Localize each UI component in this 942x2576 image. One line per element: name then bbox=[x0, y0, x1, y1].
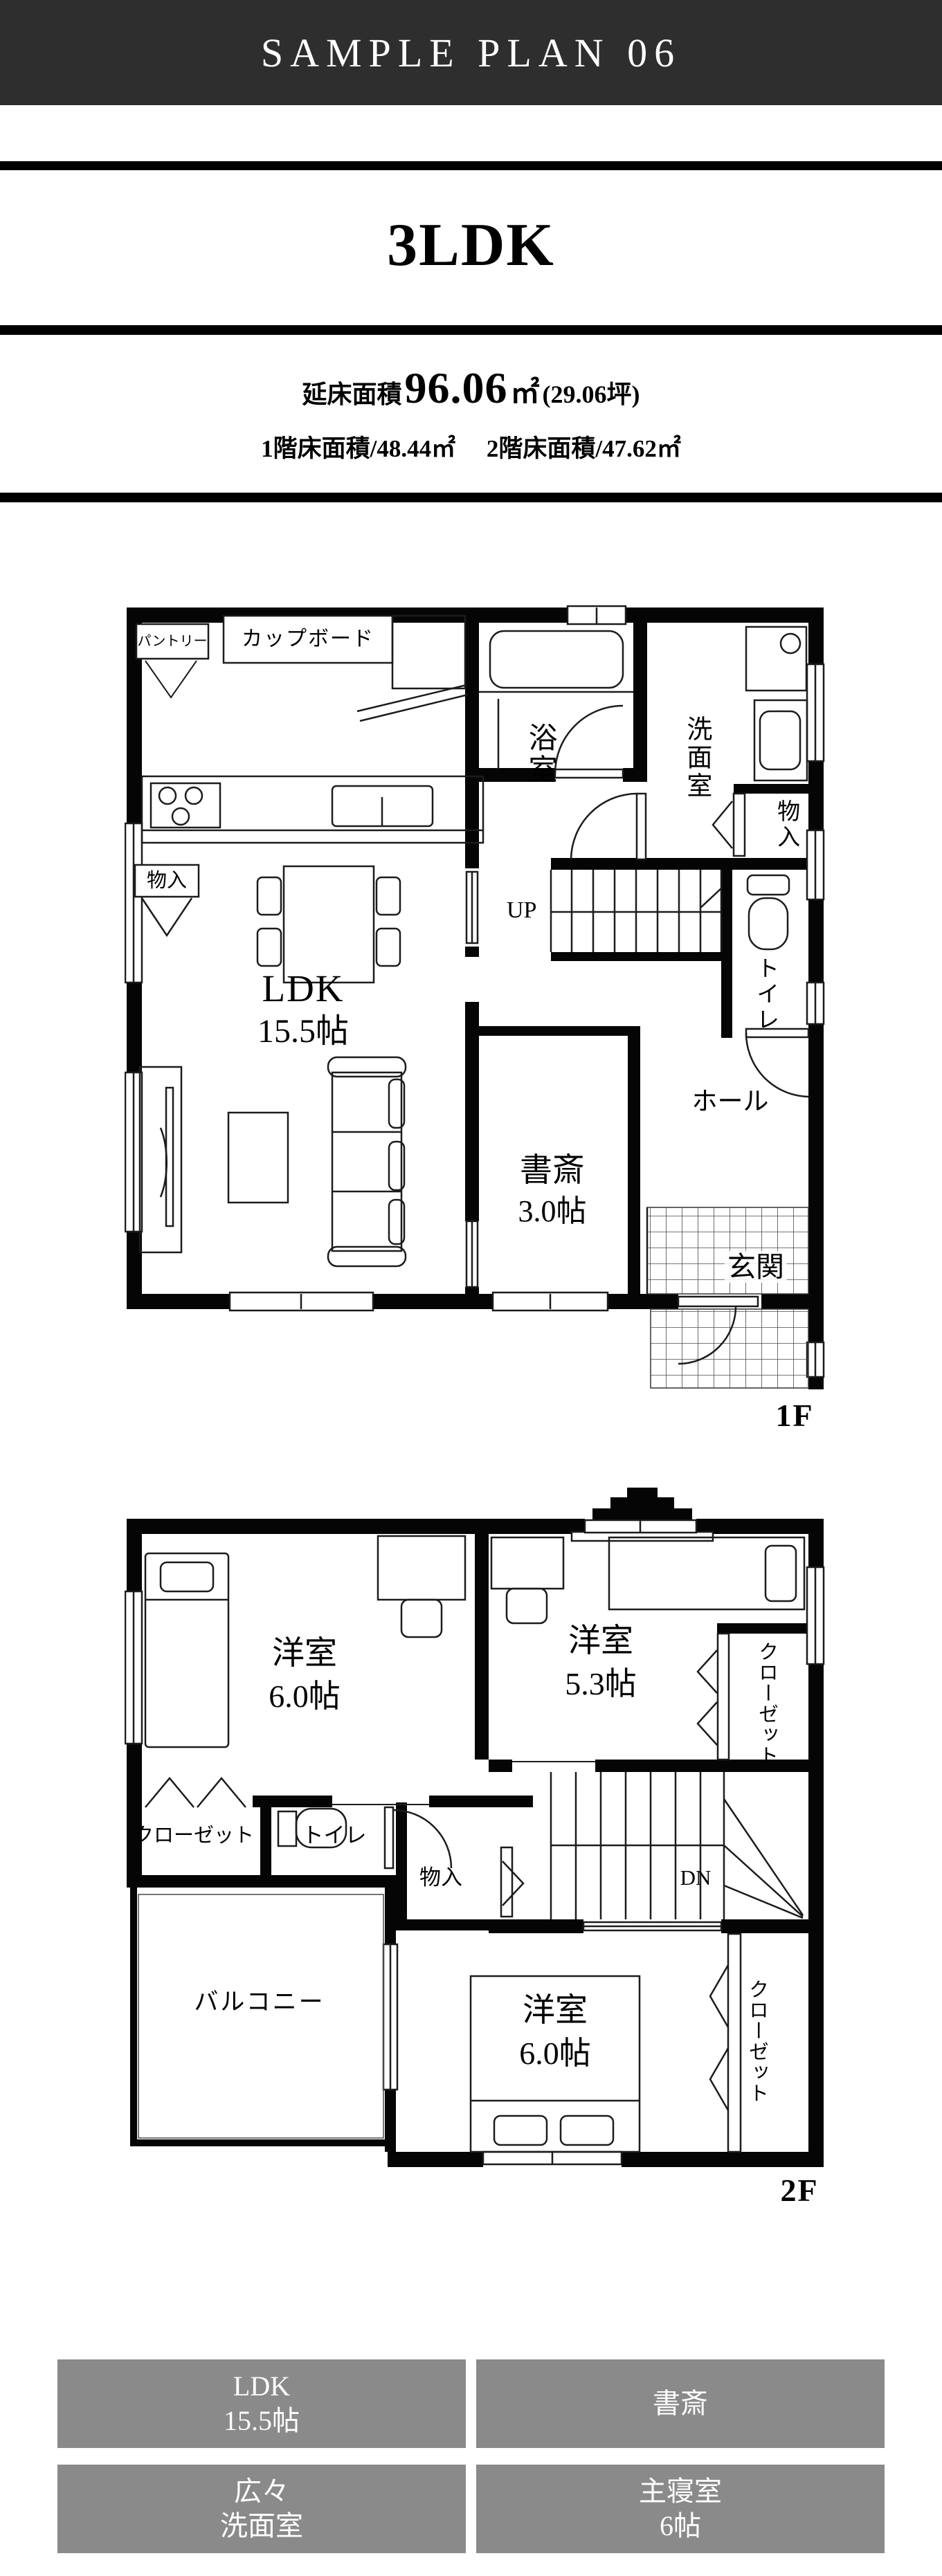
room-label-bedroom-a-size: 6.0帖 bbox=[235, 1680, 374, 1713]
floor2-plan: 洋室 6.0帖 洋室 5.3帖 クローゼット クローゼット トイレ 物入 DN … bbox=[125, 1488, 825, 2211]
room-label-washroom: 洗面室 bbox=[682, 699, 709, 816]
room-label-cupboard: カップボード bbox=[224, 616, 392, 663]
room-label-closet-left: クローゼット bbox=[132, 1825, 256, 1846]
room-label-entrance-text: 玄関 bbox=[725, 1251, 787, 1283]
legend-item-study-line1: 書斎 bbox=[653, 2386, 708, 2421]
floor-area-line: 1階床面積/48.44㎡ 2階床面積/47.62㎡ bbox=[0, 429, 942, 464]
legend-item-ldk-line2: 15.5帖 bbox=[224, 2404, 300, 2438]
legend-item-bedroom-line2: 6帖 bbox=[660, 2509, 701, 2543]
room-label-study-size: 3.0帖 bbox=[500, 1196, 604, 1227]
room-label-entrance: 玄関 bbox=[700, 1252, 811, 1282]
legend-item-study: 書斎 bbox=[476, 2359, 885, 2448]
total-area-unit: ㎡ bbox=[511, 378, 540, 410]
floor2-tag: 2F bbox=[772, 2174, 827, 2207]
floor2-plan-drawing bbox=[125, 1488, 825, 2211]
room-label-toilet-2f: トイレ bbox=[289, 1825, 379, 1847]
legend-item-bedroom: 主寝室 6帖 bbox=[476, 2465, 885, 2553]
room-label-study: 書斎 bbox=[500, 1154, 604, 1188]
legend-item-washroom: 広々 洗面室 bbox=[57, 2465, 466, 2553]
floor1-plan-drawing bbox=[125, 595, 825, 1453]
stairs-up-label: UP bbox=[507, 898, 536, 923]
room-label-storage-2f: 物入 bbox=[410, 1867, 472, 1890]
room-label-ldk-size: 15.5帖 bbox=[234, 1014, 372, 1049]
room-label-ldk: LDK bbox=[241, 969, 365, 1009]
total-area-value: 96.06 bbox=[405, 363, 508, 412]
legend-item-ldk-line1: LDK bbox=[233, 2369, 290, 2404]
legend-item-washroom-line1: 広々 bbox=[234, 2474, 289, 2509]
floor1-tag: 1F bbox=[767, 1399, 822, 1432]
room-label-storage-left: 物入 bbox=[135, 865, 199, 897]
room-label-hall: ホール bbox=[678, 1089, 782, 1116]
floor1-plan: パントリー カップボード 浴室 洗面室 物入 UP トイレ ホール 書斎 3.0… bbox=[125, 595, 825, 1453]
total-area-label: 延床面積 bbox=[302, 381, 401, 408]
floor1-area: 1階床面積/48.44㎡ bbox=[261, 435, 455, 462]
room-label-storage-right: 物入 bbox=[774, 794, 798, 855]
divider-line-2 bbox=[0, 325, 942, 335]
room-label-toilet-1f: トイレ bbox=[753, 949, 777, 1039]
divider-line-1 bbox=[0, 161, 942, 170]
page-title: SAMPLE PLAN 06 bbox=[261, 30, 681, 76]
legend-item-bedroom-line1: 主寝室 bbox=[639, 2474, 722, 2509]
room-label-bedroom-c-size: 6.0帖 bbox=[486, 2037, 624, 2070]
room-label-balcony: バルコニー bbox=[187, 1990, 332, 2016]
room-label-bath: 浴室 bbox=[525, 692, 555, 816]
room-label-bedroom-a: 洋室 bbox=[242, 1637, 367, 1671]
room-label-bedroom-c: 洋室 bbox=[493, 1994, 617, 2028]
room-label-bedroom-b: 洋室 bbox=[538, 1625, 663, 1659]
plan-type-title: 3LDK bbox=[0, 210, 942, 280]
legend-item-washroom-line2: 洗面室 bbox=[220, 2509, 303, 2543]
room-label-closet-mid: クローゼット bbox=[756, 1641, 777, 1759]
room-label-pantry: パントリー bbox=[136, 624, 208, 659]
divider-line-3 bbox=[0, 493, 942, 502]
total-area-tsubo: (29.06坪) bbox=[543, 381, 640, 408]
room-label-closet-main: クローゼット bbox=[746, 1972, 767, 2110]
stairs-dn-label: DN bbox=[671, 1867, 720, 1890]
floor2-area: 2階床面積/47.62㎡ bbox=[487, 435, 681, 462]
total-area-line: 延床面積 96.06 ㎡ (29.06坪) bbox=[0, 363, 942, 414]
header-bar: SAMPLE PLAN 06 bbox=[0, 0, 942, 105]
room-label-bedroom-b-size: 5.3帖 bbox=[532, 1668, 670, 1701]
legend-item-ldk: LDK 15.5帖 bbox=[57, 2359, 466, 2448]
